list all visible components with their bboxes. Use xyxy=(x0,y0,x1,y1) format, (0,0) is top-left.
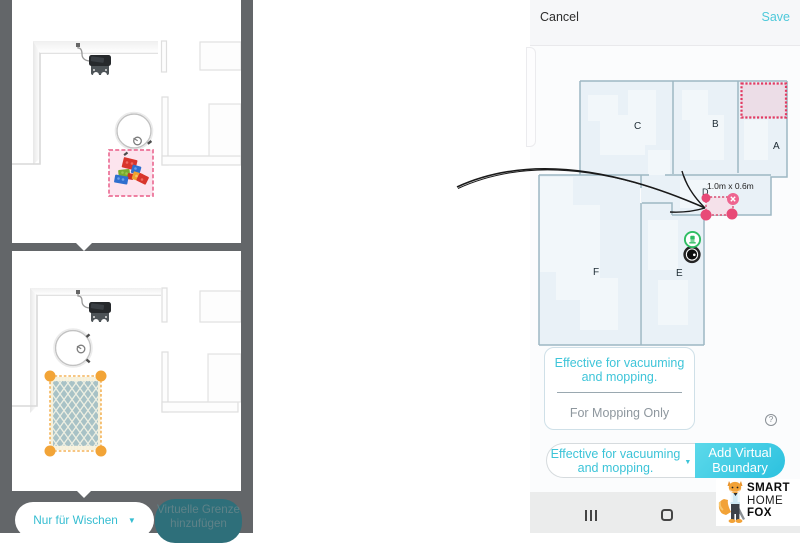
svg-text:C: C xyxy=(634,121,641,132)
svg-text:F: F xyxy=(593,267,599,278)
svg-text:B: B xyxy=(712,119,719,130)
svg-text:E: E xyxy=(676,268,683,279)
svg-text:A: A xyxy=(773,141,780,152)
